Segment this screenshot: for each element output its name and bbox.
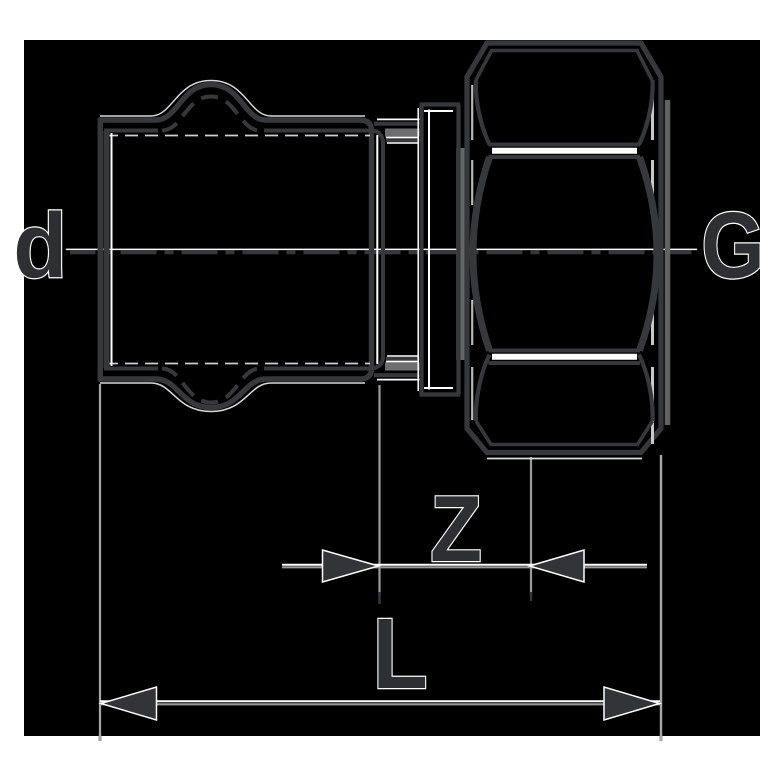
svg-text:Z: Z bbox=[430, 476, 482, 580]
svg-text:L: L bbox=[372, 599, 428, 710]
svg-text:d: d bbox=[13, 194, 67, 297]
svg-text:G: G bbox=[701, 193, 764, 297]
